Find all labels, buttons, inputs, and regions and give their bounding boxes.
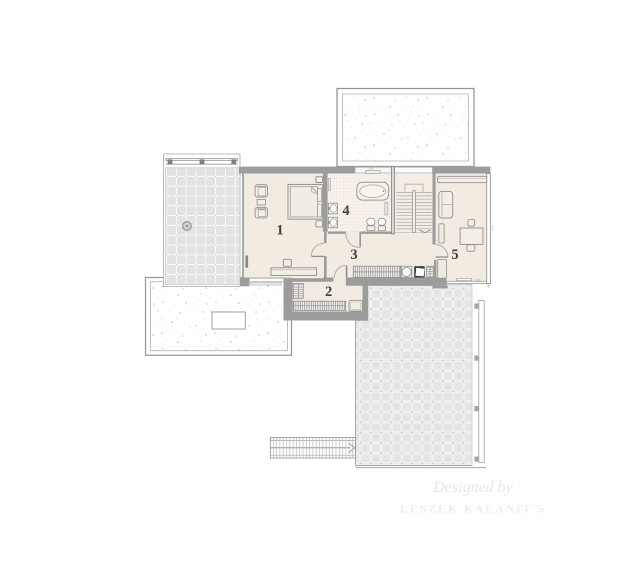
svg-text:1: 1 [276, 223, 283, 239]
svg-text:2: 2 [325, 284, 332, 300]
svg-text:Designed by: Designed by [432, 479, 513, 496]
svg-text:3: 3 [350, 247, 357, 263]
svg-text:1.41: 1.41 [368, 166, 374, 170]
svg-text:6.05: 6.05 [475, 278, 481, 282]
svg-text:5: 5 [451, 247, 458, 263]
svg-text:3.65: 3.65 [491, 225, 495, 231]
svg-text:4: 4 [342, 203, 349, 219]
svg-text:LESZEK KALANIT'S: LESZEK KALANIT'S [400, 502, 546, 516]
